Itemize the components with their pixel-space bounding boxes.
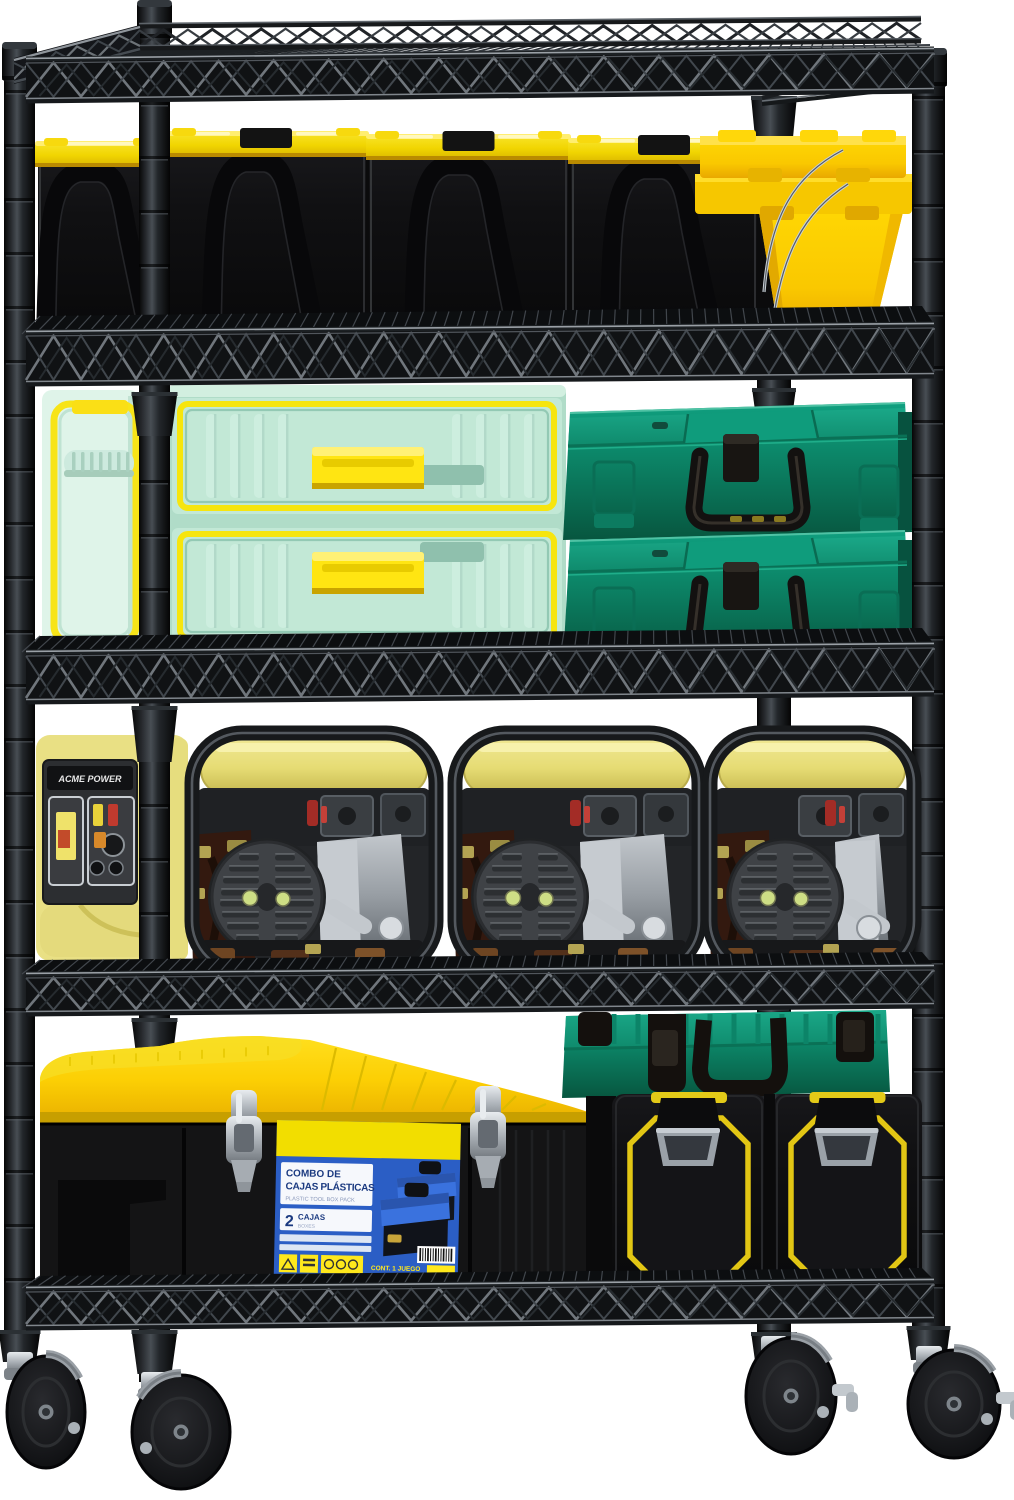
- svg-text:ACME POWER: ACME POWER: [58, 774, 123, 784]
- svg-text:2: 2: [285, 1213, 294, 1230]
- svg-text:BOXES: BOXES: [298, 1223, 316, 1229]
- svg-text:CONT. 1 JUEGO: CONT. 1 JUEGO: [371, 1265, 421, 1273]
- svg-text:CAJAS: CAJAS: [298, 1212, 326, 1222]
- svg-text:COMBO DE: COMBO DE: [286, 1168, 342, 1180]
